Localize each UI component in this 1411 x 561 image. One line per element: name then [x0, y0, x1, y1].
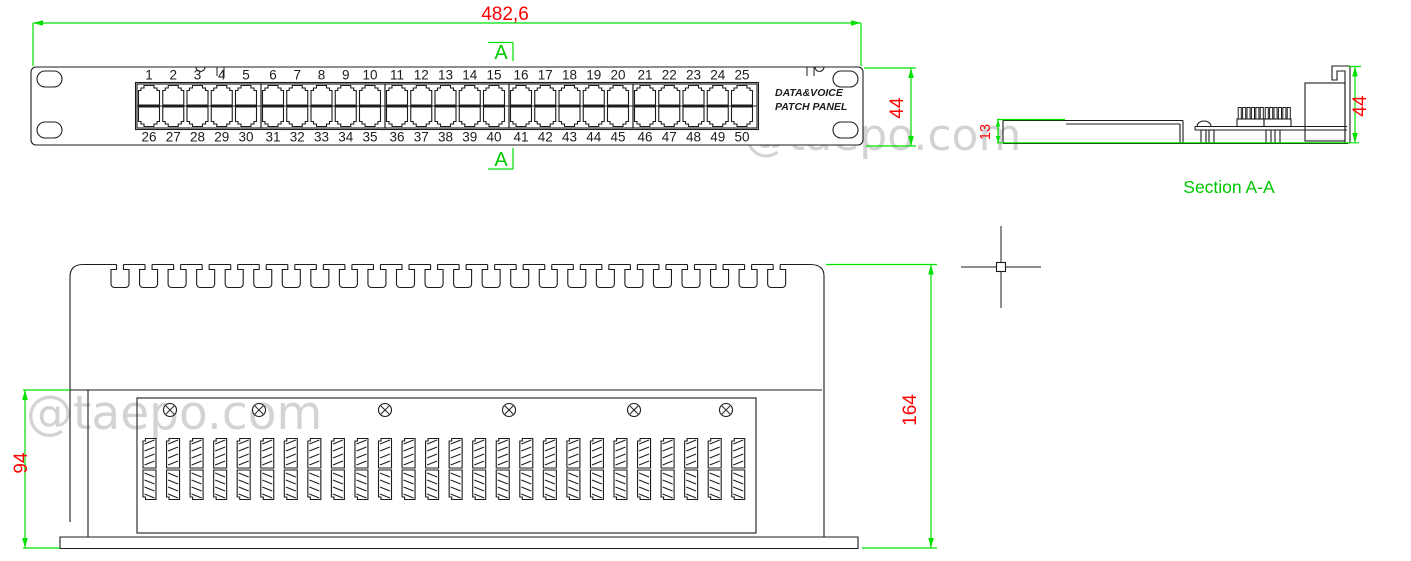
idc-contacts: [710, 440, 720, 465]
cable-slot: [711, 265, 729, 288]
section-tray: [1003, 121, 1183, 144]
front-view: 1262273284295306317328339341035113612371…: [31, 67, 863, 145]
idc-block: [379, 470, 392, 500]
port-number: 24: [710, 68, 726, 83]
pcb-leg: [1266, 130, 1271, 143]
idc-contacts: [568, 440, 578, 465]
idc-contacts: [309, 473, 319, 498]
panel-label-line2: PATCH PANEL: [775, 101, 847, 113]
port-number: 23: [686, 68, 701, 83]
rear-bottom-strip: [60, 537, 858, 549]
section-view-title: Section A-A: [1183, 177, 1275, 197]
idc-contacts: [733, 473, 743, 498]
port-number: 9: [342, 68, 350, 83]
idc-block: [426, 439, 439, 469]
port-number: 8: [318, 68, 326, 83]
pcb-leg: [1209, 130, 1214, 143]
port-number: 15: [486, 68, 501, 83]
idc-tooth: [1238, 108, 1241, 120]
cable-slot: [111, 265, 129, 288]
idc-contacts: [616, 440, 626, 465]
port-number: 35: [362, 130, 377, 145]
cable-slot: [140, 265, 158, 288]
port-number: 34: [338, 130, 354, 145]
tray-dimension-text: 13: [978, 124, 994, 140]
idc-block: [708, 439, 721, 469]
idc-contacts: [215, 440, 225, 465]
port-number: 6: [269, 68, 277, 83]
rear-height-dimension-text: 94: [11, 452, 32, 474]
port-number: 46: [637, 130, 652, 145]
port-number: 26: [141, 130, 156, 145]
idc-block: [614, 439, 627, 469]
cable-slot: [653, 265, 671, 288]
idc-block: [167, 439, 180, 469]
height-dimension-text: 44: [887, 97, 908, 119]
port-number: 25: [734, 68, 749, 83]
width-dimension-line: [33, 23, 861, 66]
idc-block: [331, 439, 344, 469]
idc-block: [638, 439, 651, 469]
idc-contacts: [451, 440, 461, 465]
idc-contacts: [262, 473, 272, 498]
port-number: 12: [414, 68, 429, 83]
port-number: 43: [562, 130, 577, 145]
idc-block: [261, 439, 274, 469]
idc-comb-base: [1264, 119, 1291, 127]
idc-contacts: [168, 440, 178, 465]
idc-contacts: [215, 473, 225, 498]
idc-tooth: [1287, 108, 1290, 120]
port-number: 17: [538, 68, 553, 83]
technical-drawing-canvas: @taepo.com @taepo.com 126227328429530631…: [0, 0, 1411, 561]
idc-block: [143, 439, 156, 469]
idc-block: [426, 470, 439, 500]
idc-contacts: [545, 440, 555, 465]
idc-block: [638, 470, 651, 500]
port-number: 32: [290, 130, 305, 145]
idc-contacts: [404, 473, 414, 498]
port-number: 3: [194, 68, 202, 83]
port-number: 2: [169, 68, 177, 83]
idc-tooth: [1283, 108, 1286, 120]
cable-slot: [197, 265, 215, 288]
cable-slot: [568, 265, 586, 288]
idc-contacts: [145, 440, 155, 465]
screw-dome: [1197, 121, 1211, 127]
idc-contacts: [309, 440, 319, 465]
idc-tooth: [1274, 108, 1277, 120]
port-number: 22: [662, 68, 677, 83]
port-number: 13: [438, 68, 453, 83]
idc-terminal-columns: [143, 439, 745, 500]
cable-slot: [311, 265, 329, 288]
idc-tooth: [1278, 108, 1281, 120]
port-number: 20: [610, 68, 625, 83]
cable-slot: [511, 265, 529, 288]
idc-contacts: [404, 440, 414, 465]
idc-tooth: [1270, 108, 1273, 120]
idc-contacts: [616, 473, 626, 498]
port-number: 39: [462, 130, 477, 145]
cable-slot: [625, 265, 643, 288]
port-number: 40: [486, 130, 501, 145]
cable-slot: [339, 265, 357, 288]
cable-slot: [368, 265, 386, 288]
port-number: 10: [362, 68, 377, 83]
port-number: 11: [390, 68, 404, 83]
cable-slot: [425, 265, 443, 288]
idc-contacts: [356, 440, 366, 465]
idc-block: [284, 439, 297, 469]
port-number: 18: [562, 68, 577, 83]
idc-block: [143, 470, 156, 500]
idc-block: [237, 470, 250, 500]
idc-block: [543, 439, 556, 469]
idc-block: [496, 470, 509, 500]
port-number: 28: [190, 130, 205, 145]
idc-tooth: [1251, 108, 1254, 120]
idc-contacts: [451, 473, 461, 498]
idc-contacts: [639, 473, 649, 498]
rear-body-right-edge: [780, 265, 824, 538]
idc-block: [661, 470, 674, 500]
idc-block: [237, 439, 250, 469]
idc-block: [449, 470, 462, 500]
cable-slot: [596, 265, 614, 288]
idc-block: [331, 470, 344, 500]
idc-contacts: [380, 440, 390, 465]
idc-block: [308, 470, 321, 500]
idc-block: [402, 470, 415, 500]
idc-contacts: [663, 473, 673, 498]
port-number: 50: [734, 130, 749, 145]
idc-contacts: [545, 473, 555, 498]
port-number: 42: [538, 130, 553, 145]
port-number: 14: [462, 68, 478, 83]
overall-dimension-text: 164: [900, 394, 921, 426]
cable-slot: [168, 265, 186, 288]
port-number: 36: [389, 130, 404, 145]
idc-block: [214, 439, 227, 469]
idc-block: [590, 470, 603, 500]
cable-slot: [254, 265, 272, 288]
section-front-plate: [1332, 66, 1350, 143]
cable-slot: [539, 265, 557, 288]
port-number: 30: [238, 130, 253, 145]
idc-contacts: [239, 473, 249, 498]
idc-contacts: [192, 440, 202, 465]
idc-contacts: [286, 473, 296, 498]
port-number: 29: [214, 130, 229, 145]
idc-block: [214, 470, 227, 500]
idc-block: [496, 439, 509, 469]
idc-contacts: [474, 440, 484, 465]
idc-contacts: [521, 440, 531, 465]
idc-block: [661, 439, 674, 469]
idc-block: [708, 470, 721, 500]
idc-block: [520, 439, 533, 469]
idc-tooth: [1243, 108, 1246, 120]
idc-contacts: [239, 440, 249, 465]
idc-block: [567, 470, 580, 500]
idc-contacts: [333, 473, 343, 498]
idc-contacts: [333, 440, 343, 465]
idc-tooth: [1260, 108, 1263, 120]
port-number: 31: [265, 130, 280, 145]
idc-block: [167, 470, 180, 500]
idc-block: [567, 439, 580, 469]
idc-tooth: [1247, 108, 1250, 120]
idc-block: [261, 470, 274, 500]
idc-contacts: [145, 473, 155, 498]
cable-slot: [682, 265, 700, 288]
idc-block: [732, 439, 745, 469]
idc-block: [402, 439, 415, 469]
idc-combs: [1237, 108, 1291, 127]
width-dimension-text: 482,6: [481, 4, 529, 25]
idc-contacts: [262, 440, 272, 465]
idc-contacts: [427, 440, 437, 465]
cable-slot: [482, 265, 500, 288]
idc-block: [473, 470, 486, 500]
cad-crosshair-cursor: [961, 226, 1041, 308]
crosshair-pickbox: [997, 263, 1006, 272]
idc-contacts: [686, 440, 696, 465]
section-height-dimension-text: 44: [1350, 95, 1371, 117]
idc-contacts: [521, 473, 531, 498]
idc-block: [473, 439, 486, 469]
idc-contacts: [592, 473, 602, 498]
idc-block: [685, 470, 698, 500]
idc-contacts: [380, 473, 390, 498]
idc-block: [685, 439, 698, 469]
cable-slot: [397, 265, 415, 288]
idc-contacts: [474, 473, 484, 498]
idc-block: [190, 470, 203, 500]
port-number: 41: [513, 130, 528, 145]
port-number: 27: [166, 130, 181, 145]
port-number: 47: [662, 130, 677, 145]
idc-block: [355, 470, 368, 500]
section-mark-bottom-letter: A: [494, 149, 508, 171]
port-number: 48: [686, 130, 701, 145]
idc-contacts: [663, 440, 673, 465]
cable-slot: [282, 265, 300, 288]
section-view: [1003, 66, 1350, 144]
port-number: 1: [145, 68, 153, 83]
idc-contacts: [498, 440, 508, 465]
idc-block: [449, 439, 462, 469]
idc-block: [732, 470, 745, 500]
port-number: 7: [293, 68, 301, 83]
idc-contacts: [592, 440, 602, 465]
port-number: 44: [586, 130, 602, 145]
idc-contacts: [498, 473, 508, 498]
idc-block: [614, 470, 627, 500]
idc-contacts: [168, 473, 178, 498]
port-number: 49: [710, 130, 725, 145]
idc-block: [379, 439, 392, 469]
idc-block: [520, 470, 533, 500]
port-number: 45: [610, 130, 625, 145]
idc-contacts: [733, 440, 743, 465]
section-view-dimensions: 13 44 Section A-A: [978, 67, 1371, 198]
port-number: 33: [314, 130, 329, 145]
cable-slot: [454, 265, 472, 288]
pcb-leg: [1275, 130, 1280, 143]
idc-contacts: [192, 473, 202, 498]
cable-slot: [739, 265, 757, 288]
port-number: 21: [637, 68, 652, 83]
idc-contacts: [710, 473, 720, 498]
idc-comb-base: [1237, 119, 1264, 127]
idc-contacts: [427, 473, 437, 498]
idc-block: [543, 470, 556, 500]
section-mark-top-letter: A: [494, 42, 508, 64]
idc-contacts: [286, 440, 296, 465]
idc-contacts: [639, 440, 649, 465]
idc-contacts: [568, 473, 578, 498]
port-number: 16: [513, 68, 528, 83]
cable-slot: [768, 265, 786, 288]
idc-contacts: [686, 473, 696, 498]
idc-contacts: [356, 473, 366, 498]
port-number: 37: [414, 130, 429, 145]
section-jack-module: [1305, 83, 1345, 141]
cable-slot: [225, 265, 243, 288]
idc-block: [355, 439, 368, 469]
idc-tooth: [1256, 108, 1259, 120]
port-number: 38: [438, 130, 453, 145]
idc-block: [190, 439, 203, 469]
idc-block: [308, 439, 321, 469]
port-number: 19: [586, 68, 601, 83]
idc-block: [590, 439, 603, 469]
pcb-leg: [1201, 130, 1206, 143]
port-number: 5: [242, 68, 250, 83]
idc-tooth: [1265, 108, 1268, 120]
panel-label-line1: DATA&VOICE: [775, 87, 844, 99]
idc-block: [284, 470, 297, 500]
port-number: 4: [218, 68, 226, 83]
